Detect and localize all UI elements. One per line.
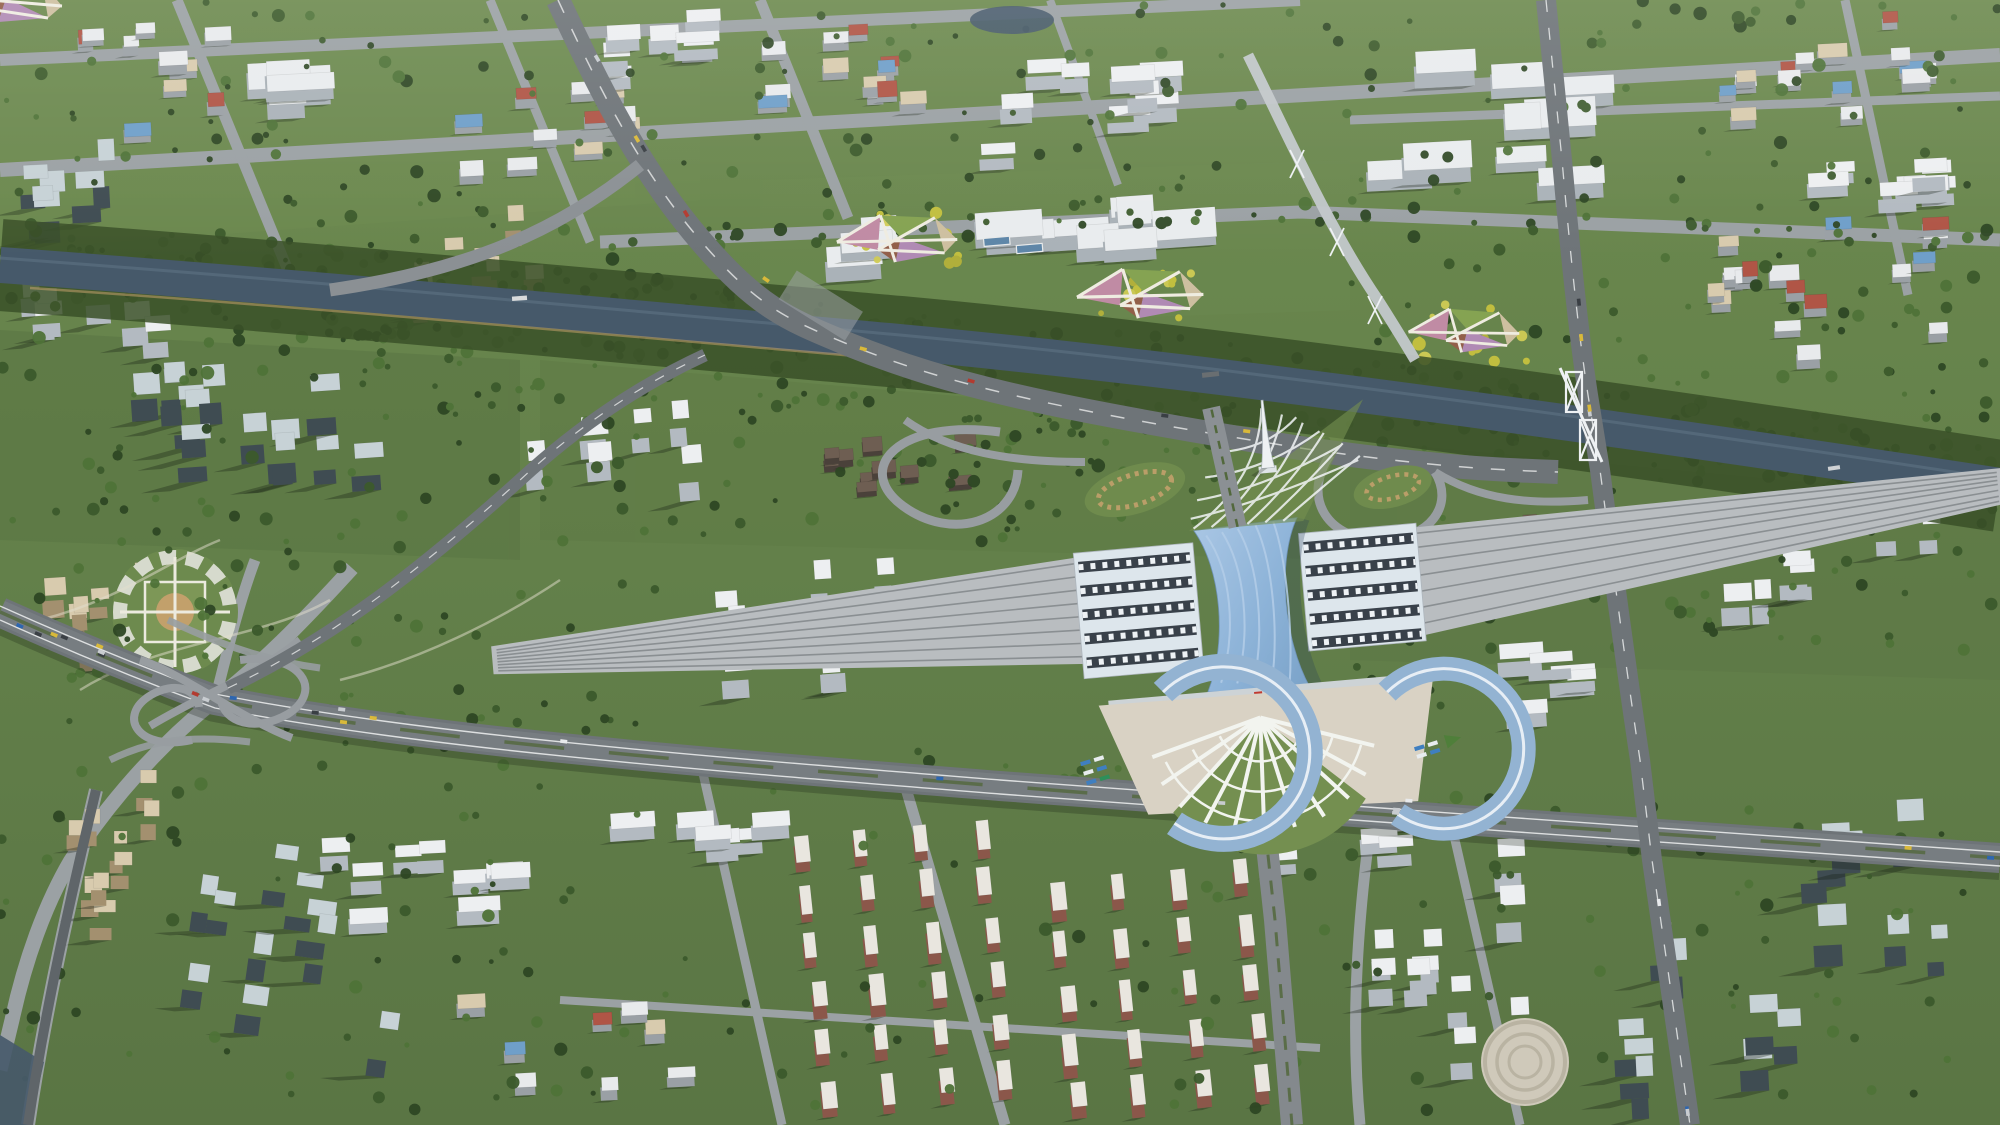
tree bbox=[1685, 304, 1691, 310]
tree bbox=[1902, 590, 1909, 597]
tree bbox=[1493, 871, 1502, 880]
tree bbox=[27, 1011, 40, 1024]
tree bbox=[1867, 1085, 1877, 1095]
tree bbox=[373, 1091, 385, 1103]
tree bbox=[975, 994, 983, 1002]
tree bbox=[710, 501, 720, 511]
tree bbox=[456, 440, 462, 446]
tree bbox=[1953, 546, 1963, 556]
tree bbox=[1090, 1000, 1097, 1007]
tree bbox=[1811, 635, 1821, 645]
tree bbox=[364, 482, 374, 492]
platform-canopy-west bbox=[1073, 543, 1204, 679]
tree bbox=[201, 366, 215, 380]
tree bbox=[1563, 335, 1571, 343]
tree bbox=[1489, 860, 1501, 872]
tree bbox=[349, 693, 354, 698]
tree bbox=[918, 980, 926, 988]
tree bbox=[1599, 278, 1610, 289]
tree bbox=[1168, 281, 1175, 288]
tree bbox=[1925, 996, 1935, 1006]
tree bbox=[1609, 307, 1618, 316]
tree bbox=[1778, 556, 1785, 563]
tree bbox=[515, 386, 522, 393]
tree bbox=[810, 1100, 820, 1110]
tree bbox=[118, 833, 125, 840]
tree bbox=[224, 1048, 230, 1054]
tree bbox=[592, 363, 597, 368]
tree bbox=[279, 344, 291, 356]
tree bbox=[1696, 924, 1709, 937]
car bbox=[1218, 801, 1225, 805]
tree bbox=[651, 395, 657, 401]
tree bbox=[591, 1091, 596, 1096]
tree bbox=[1006, 515, 1016, 525]
tree bbox=[1175, 314, 1182, 321]
tree bbox=[444, 782, 453, 791]
tree bbox=[536, 783, 543, 790]
tree bbox=[976, 535, 988, 547]
tree bbox=[1201, 1017, 1214, 1030]
tree bbox=[633, 433, 640, 440]
tree bbox=[252, 764, 262, 774]
tree bbox=[165, 546, 172, 553]
tree bbox=[733, 437, 745, 449]
tree bbox=[1210, 995, 1220, 1005]
tree bbox=[858, 841, 868, 851]
tree bbox=[24, 369, 36, 381]
tree bbox=[1353, 663, 1361, 671]
tree bbox=[493, 1094, 499, 1100]
tree bbox=[1138, 981, 1149, 992]
tree bbox=[100, 497, 108, 505]
tree bbox=[1349, 280, 1355, 286]
tree bbox=[1025, 500, 1035, 510]
tree bbox=[131, 392, 137, 398]
tree bbox=[1912, 309, 1920, 317]
tree bbox=[612, 457, 624, 469]
tree bbox=[172, 838, 181, 847]
tree bbox=[33, 331, 46, 344]
tree bbox=[1967, 570, 1975, 578]
tree bbox=[252, 625, 263, 636]
tree bbox=[478, 714, 485, 721]
tree bbox=[953, 501, 959, 507]
tree bbox=[410, 620, 423, 633]
tree bbox=[116, 444, 123, 451]
tree bbox=[1979, 358, 1988, 367]
tree bbox=[541, 700, 548, 707]
tree bbox=[245, 451, 258, 464]
tree bbox=[974, 415, 982, 423]
tree bbox=[359, 380, 366, 387]
tree bbox=[1728, 991, 1734, 997]
tree bbox=[1437, 702, 1445, 710]
tree bbox=[945, 478, 955, 488]
tree bbox=[1938, 363, 1946, 371]
tree bbox=[233, 334, 245, 346]
tree bbox=[1015, 526, 1020, 531]
tree bbox=[151, 364, 161, 374]
tree bbox=[559, 895, 568, 904]
tree bbox=[1933, 532, 1940, 539]
tree bbox=[1342, 963, 1350, 971]
tree bbox=[551, 1085, 563, 1097]
tree bbox=[1638, 354, 1648, 364]
tree bbox=[777, 1069, 787, 1079]
tree bbox=[344, 1034, 351, 1041]
tree bbox=[181, 405, 186, 410]
tree bbox=[202, 424, 212, 434]
tree bbox=[452, 955, 461, 964]
tree bbox=[513, 718, 522, 727]
tree bbox=[1098, 310, 1104, 316]
tree bbox=[1075, 469, 1083, 477]
tree bbox=[1142, 940, 1149, 947]
tree bbox=[1194, 1073, 1205, 1084]
tree bbox=[998, 532, 1008, 542]
tree bbox=[475, 391, 482, 398]
tree bbox=[482, 909, 495, 922]
tree bbox=[491, 382, 501, 392]
tree bbox=[1067, 428, 1076, 437]
tree bbox=[26, 1025, 34, 1033]
tree bbox=[1985, 598, 1998, 611]
tree bbox=[1701, 590, 1710, 599]
tree bbox=[1647, 374, 1655, 382]
tree bbox=[1009, 430, 1021, 442]
tree bbox=[1594, 965, 1606, 977]
tree bbox=[586, 691, 597, 702]
tree bbox=[581, 726, 590, 735]
tree bbox=[1171, 988, 1178, 995]
tree bbox=[1047, 418, 1052, 423]
tree bbox=[1832, 567, 1839, 574]
tree bbox=[1450, 791, 1463, 804]
tree bbox=[974, 461, 981, 468]
tree bbox=[1827, 1026, 1839, 1038]
tree bbox=[1891, 908, 1903, 920]
tree bbox=[457, 361, 463, 367]
tree bbox=[517, 404, 525, 412]
tree bbox=[346, 833, 356, 843]
tree bbox=[1778, 1089, 1788, 1099]
tree bbox=[1419, 900, 1427, 908]
tree bbox=[1744, 880, 1753, 889]
tree bbox=[739, 409, 746, 416]
tree bbox=[948, 469, 958, 479]
tree bbox=[499, 947, 508, 956]
tree bbox=[566, 886, 574, 894]
tree bbox=[85, 429, 91, 435]
tree bbox=[1701, 370, 1710, 379]
tree bbox=[105, 481, 117, 493]
tree bbox=[288, 1091, 295, 1098]
tree bbox=[1789, 583, 1797, 591]
tree bbox=[1039, 923, 1052, 936]
tree bbox=[340, 692, 349, 701]
tree bbox=[351, 636, 362, 647]
tree bbox=[1841, 556, 1852, 567]
tree bbox=[198, 498, 206, 506]
tree bbox=[841, 1051, 848, 1058]
tree bbox=[1049, 421, 1059, 431]
tree bbox=[385, 364, 391, 370]
tree bbox=[1674, 606, 1687, 619]
tree bbox=[839, 397, 848, 406]
tree bbox=[1821, 324, 1829, 332]
tree bbox=[1250, 1102, 1262, 1114]
tree bbox=[492, 705, 500, 713]
tree bbox=[742, 999, 750, 1007]
tree bbox=[117, 537, 126, 546]
tree bbox=[350, 518, 360, 528]
tree bbox=[388, 843, 395, 850]
tree bbox=[1902, 392, 1907, 397]
tree bbox=[581, 1066, 593, 1078]
tree bbox=[469, 716, 476, 723]
tree bbox=[202, 653, 209, 660]
tree bbox=[377, 348, 386, 357]
tree bbox=[1004, 526, 1010, 532]
tree bbox=[220, 438, 226, 444]
tree bbox=[863, 396, 875, 408]
tree bbox=[557, 535, 568, 546]
tree bbox=[1939, 831, 1945, 837]
tree bbox=[1776, 370, 1789, 383]
tree bbox=[634, 811, 641, 818]
tree bbox=[554, 393, 565, 404]
tree bbox=[1421, 1104, 1433, 1116]
tree bbox=[1735, 891, 1740, 896]
tree bbox=[1814, 992, 1820, 998]
tree bbox=[1441, 300, 1450, 309]
tree bbox=[1731, 1004, 1736, 1009]
tree bbox=[1838, 327, 1846, 335]
tree bbox=[701, 531, 707, 537]
tree bbox=[1485, 992, 1493, 1000]
tree bbox=[1170, 1099, 1180, 1109]
tree bbox=[950, 860, 958, 868]
tree bbox=[1886, 639, 1895, 648]
tree bbox=[1760, 898, 1773, 911]
tree bbox=[334, 560, 347, 573]
tree bbox=[1373, 968, 1382, 977]
tree bbox=[1910, 1090, 1918, 1098]
tree bbox=[540, 495, 547, 502]
tree bbox=[662, 991, 668, 997]
circular-plaza-se bbox=[1481, 1018, 1569, 1106]
tree bbox=[1980, 396, 1993, 409]
tree bbox=[1036, 428, 1042, 434]
tree bbox=[1115, 765, 1122, 772]
tree bbox=[349, 980, 362, 993]
tree bbox=[152, 495, 160, 503]
tree bbox=[446, 403, 454, 411]
tree bbox=[1767, 610, 1775, 618]
tree bbox=[1824, 969, 1834, 979]
tree bbox=[850, 391, 858, 399]
tree bbox=[223, 584, 228, 589]
tree bbox=[1852, 310, 1864, 322]
tree bbox=[516, 590, 526, 600]
tree bbox=[179, 375, 189, 385]
tree bbox=[1850, 1034, 1859, 1043]
tree bbox=[472, 812, 479, 819]
haze bbox=[0, 0, 2000, 260]
tree bbox=[317, 761, 327, 771]
tree bbox=[73, 563, 84, 574]
tree bbox=[113, 624, 126, 637]
tree bbox=[172, 786, 184, 798]
tree bbox=[310, 373, 319, 382]
tree bbox=[758, 393, 763, 398]
car bbox=[936, 776, 943, 780]
tree bbox=[1586, 915, 1594, 923]
tree bbox=[914, 748, 922, 756]
tree bbox=[1004, 446, 1012, 454]
tree bbox=[817, 393, 830, 406]
tree bbox=[714, 372, 723, 381]
tree bbox=[860, 981, 870, 991]
tree bbox=[284, 548, 292, 556]
tree bbox=[1733, 984, 1739, 990]
tree bbox=[113, 450, 123, 460]
tree bbox=[383, 414, 389, 420]
tree bbox=[1858, 287, 1868, 297]
tree bbox=[34, 593, 46, 605]
tree bbox=[432, 383, 438, 389]
tree bbox=[966, 415, 973, 422]
tree bbox=[651, 585, 660, 594]
tree bbox=[1940, 280, 1952, 292]
tree bbox=[1958, 644, 1970, 656]
car bbox=[1987, 856, 1994, 860]
tree bbox=[97, 466, 105, 474]
tree bbox=[600, 714, 609, 723]
tree bbox=[786, 404, 791, 409]
tree bbox=[1529, 325, 1543, 339]
tree bbox=[1411, 1072, 1424, 1085]
tree bbox=[471, 630, 481, 640]
tree bbox=[591, 461, 603, 473]
tree bbox=[152, 527, 160, 535]
tree bbox=[394, 541, 406, 553]
tree bbox=[1485, 643, 1496, 654]
tree bbox=[166, 913, 179, 926]
tree bbox=[337, 533, 345, 541]
city-render-canvas bbox=[0, 0, 2000, 1125]
tree bbox=[1405, 302, 1411, 308]
tree bbox=[286, 1071, 295, 1080]
tree bbox=[528, 447, 534, 453]
tree bbox=[1884, 367, 1894, 377]
tree bbox=[1517, 331, 1528, 342]
tree bbox=[229, 511, 240, 522]
tree bbox=[257, 365, 268, 376]
tree bbox=[618, 579, 627, 588]
tree bbox=[1892, 322, 1898, 328]
tree bbox=[1523, 358, 1530, 365]
tree bbox=[373, 357, 385, 369]
tree bbox=[1826, 371, 1838, 383]
tree bbox=[1092, 459, 1106, 473]
tree bbox=[441, 612, 449, 620]
tree bbox=[489, 474, 500, 485]
tree bbox=[1489, 356, 1500, 367]
tree bbox=[394, 614, 402, 622]
tree bbox=[439, 628, 446, 635]
tree bbox=[94, 598, 99, 603]
tree bbox=[348, 468, 356, 476]
tree bbox=[490, 881, 496, 887]
tree bbox=[1078, 430, 1085, 437]
tree bbox=[1506, 871, 1514, 879]
tree bbox=[1931, 413, 1941, 423]
car bbox=[1577, 299, 1581, 306]
tree bbox=[66, 718, 72, 724]
tree bbox=[632, 721, 638, 727]
tree bbox=[541, 476, 552, 487]
tree bbox=[1941, 302, 1953, 314]
tree bbox=[453, 412, 458, 417]
tree bbox=[1761, 936, 1769, 944]
tree bbox=[968, 475, 981, 488]
tree bbox=[202, 505, 215, 518]
tree bbox=[53, 811, 65, 823]
tree bbox=[1944, 1056, 1951, 1063]
tree bbox=[182, 527, 192, 537]
tree bbox=[1616, 337, 1622, 343]
tree bbox=[1750, 279, 1763, 292]
tree bbox=[400, 905, 411, 916]
tree bbox=[488, 401, 496, 409]
tree bbox=[231, 559, 244, 572]
tree bbox=[194, 777, 207, 790]
tree bbox=[1164, 448, 1170, 454]
tree bbox=[773, 498, 778, 503]
tree bbox=[459, 812, 469, 822]
tree bbox=[801, 391, 807, 397]
tree bbox=[531, 1016, 542, 1027]
tree bbox=[1345, 848, 1358, 861]
tree bbox=[1597, 1052, 1608, 1063]
tree bbox=[487, 859, 493, 865]
tree bbox=[362, 368, 367, 373]
tree bbox=[52, 508, 60, 516]
tree bbox=[1189, 487, 1196, 494]
tree bbox=[566, 623, 575, 632]
tree bbox=[204, 337, 214, 347]
tree bbox=[640, 527, 649, 536]
car bbox=[1904, 846, 1911, 850]
tree bbox=[727, 1027, 734, 1034]
tree bbox=[67, 673, 77, 683]
tree bbox=[150, 579, 160, 589]
tree bbox=[1788, 303, 1799, 314]
tree bbox=[668, 515, 678, 525]
tree bbox=[683, 956, 688, 961]
tree bbox=[1444, 258, 1455, 269]
tree bbox=[1959, 889, 1966, 896]
tree bbox=[1201, 881, 1213, 893]
tree bbox=[1675, 381, 1680, 386]
tree bbox=[87, 503, 100, 516]
tree bbox=[523, 967, 533, 977]
tree bbox=[166, 826, 179, 839]
tree bbox=[507, 1076, 520, 1089]
tree bbox=[805, 512, 818, 525]
